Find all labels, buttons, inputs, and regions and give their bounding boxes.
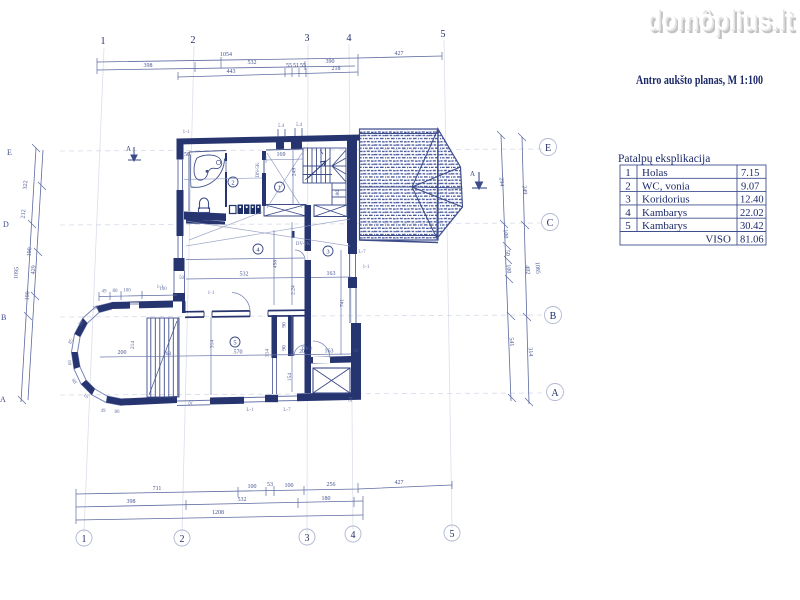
svg-text:A: A [470,170,475,178]
svg-text:1054: 1054 [220,52,232,58]
svg-text:3: 3 [326,249,329,256]
svg-text:D: D [3,220,9,229]
svg-text:180: 180 [322,496,331,502]
svg-text:163: 163 [163,351,172,357]
svg-text:E: E [7,148,12,157]
svg-text:741: 741 [340,299,346,308]
svg-text:429: 429 [31,265,38,274]
svg-text:55: 55 [286,63,292,69]
svg-text:169: 169 [277,152,286,158]
svg-text:100: 100 [248,484,257,490]
svg-text:570: 570 [234,350,243,356]
svg-text:A: A [126,145,131,153]
svg-text:22.02: 22.02 [740,208,764,219]
svg-text:2: 2 [191,35,196,46]
svg-text:249: 249 [521,185,528,194]
svg-text:Koridorius: Koridorius [642,194,690,206]
svg-text:5: 5 [625,220,631,232]
svg-text:Patalpų eksplikacija: Patalpų eksplikacija [618,153,710,165]
svg-text:DV-2: DV-2 [302,347,313,352]
svg-text:212: 212 [21,209,28,218]
svg-text:163: 163 [325,349,334,355]
svg-text:218: 218 [332,66,341,72]
svg-text:3: 3 [625,194,631,206]
svg-text:E: E [545,143,551,154]
svg-text:154: 154 [287,373,293,382]
svg-text:55: 55 [300,63,306,69]
svg-text:9.07: 9.07 [741,181,759,192]
svg-text:1-1: 1-1 [157,285,164,290]
svg-text:5: 5 [441,29,446,40]
svg-text:WC, vonia: WC, vonia [642,180,690,192]
svg-text:314: 314 [265,349,271,358]
svg-text:5: 5 [450,529,455,540]
svg-text:L-1: L-1 [246,408,254,413]
svg-text:81.06: 81.06 [740,235,764,246]
svg-text:427: 427 [395,480,404,486]
svg-text:541: 541 [508,337,515,346]
svg-text:163: 163 [327,271,336,277]
svg-text:50: 50 [353,348,359,354]
svg-text:A: A [551,388,559,399]
svg-text:50: 50 [179,276,185,281]
svg-text:2: 2 [231,180,234,187]
svg-text:100: 100 [502,229,509,238]
svg-text:30.42: 30.42 [740,221,764,232]
svg-text:80: 80 [113,289,119,294]
svg-text:A: A [0,395,6,404]
svg-text:443: 443 [227,69,236,75]
svg-text:1095: 1095 [14,267,21,279]
svg-text:Holas: Holas [642,167,668,179]
svg-text:B: B [550,311,557,322]
svg-text:2: 2 [180,534,185,545]
svg-text:1-1: 1-1 [183,130,190,135]
svg-text:1: 1 [101,36,106,47]
svg-text:1-1: 1-1 [363,265,370,270]
svg-text:532: 532 [240,272,249,278]
svg-text:80: 80 [115,410,121,415]
svg-text:49: 49 [102,290,108,295]
svg-text:L-7: L-7 [358,250,366,255]
svg-text:Antro aukšto planas, M 1:100: Antro aukšto planas, M 1:100 [636,72,763,87]
svg-text:53: 53 [267,482,273,488]
svg-text:190: 190 [27,247,34,256]
svg-text:DV-2K: DV-2K [296,242,311,247]
svg-text:322: 322 [23,180,30,189]
svg-text:B: B [1,313,6,322]
svg-text:5: 5 [233,340,236,347]
svg-text:12.40: 12.40 [740,195,764,206]
svg-text:49: 49 [101,409,107,414]
svg-text:532: 532 [248,60,257,66]
svg-text:398: 398 [144,63,153,69]
svg-text:4: 4 [347,33,352,44]
svg-text:51: 51 [293,63,299,69]
svg-text:50: 50 [504,250,510,256]
svg-text:1208: 1208 [212,510,224,516]
svg-text:2: 2 [625,180,631,192]
svg-text:1: 1 [625,167,631,179]
svg-text:4: 4 [351,530,356,541]
svg-text:L-7: L-7 [283,408,291,413]
svg-text:711: 711 [153,486,162,492]
svg-text:458: 458 [273,260,279,269]
svg-text:domôplius.lt: domôplius.lt [646,4,793,37]
svg-text:C: C [547,218,554,229]
svg-text:100: 100 [335,190,341,199]
svg-text:390: 390 [326,59,335,65]
svg-text:200: 200 [118,350,127,356]
svg-text:427: 427 [395,51,404,57]
svg-text:3: 3 [305,33,310,44]
svg-text:398: 398 [127,499,136,505]
svg-text:VISO: VISO [705,234,731,246]
svg-text:5.4: 5.4 [278,124,285,129]
svg-text:314: 314 [210,340,216,349]
svg-text:2.24: 2.24 [291,285,297,295]
svg-text:90: 90 [282,345,288,351]
svg-text:214: 214 [130,341,136,350]
svg-text:DN-5K: DN-5K [256,162,261,177]
svg-text:Kambarys: Kambarys [642,220,687,232]
svg-text:1: 1 [82,534,87,545]
svg-text:100: 100 [505,264,512,273]
svg-text:314: 314 [527,347,534,356]
svg-text:7.15: 7.15 [741,168,759,179]
svg-text:532: 532 [238,497,247,503]
svg-text:90: 90 [282,322,288,328]
svg-text:100: 100 [25,291,32,300]
svg-text:100: 100 [123,289,131,294]
svg-text:249: 249 [292,168,298,177]
svg-text:402: 402 [524,265,531,274]
svg-text:1-1: 1-1 [208,291,215,296]
svg-text:256: 256 [327,482,336,488]
svg-text:1085: 1085 [534,262,541,274]
svg-text:Kambarys: Kambarys [642,207,687,219]
svg-text:294: 294 [498,177,505,186]
svg-text:3: 3 [305,533,310,544]
svg-text:100: 100 [285,483,294,489]
svg-text:4: 4 [625,207,631,219]
svg-text:5.4: 5.4 [296,123,303,128]
svg-text:50: 50 [184,152,190,158]
